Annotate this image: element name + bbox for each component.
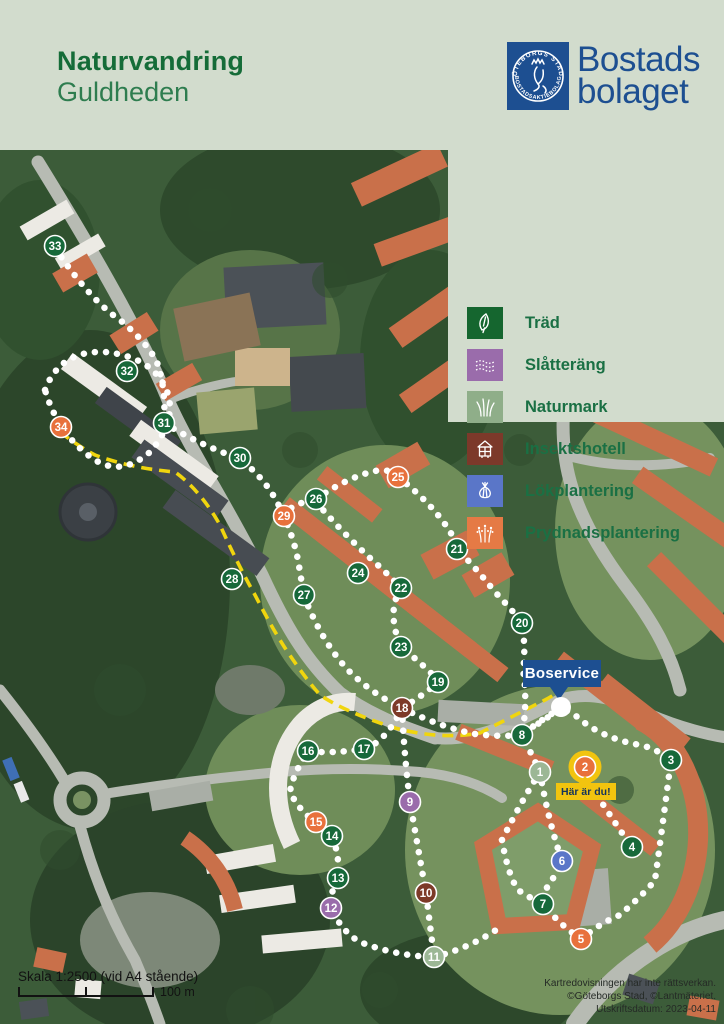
- svg-text:27: 27: [298, 590, 311, 602]
- poster-page: 1234567891011121314151617181920212223242…: [0, 0, 724, 1024]
- leaf-icon: [467, 307, 503, 339]
- svg-text:15: 15: [310, 817, 323, 829]
- legend-item-insektshotell: Insektshotell: [467, 433, 707, 465]
- map-marker-1: 1: [530, 762, 551, 783]
- svg-text:31: 31: [158, 418, 171, 430]
- svg-text:8: 8: [519, 730, 526, 742]
- svg-text:6: 6: [559, 856, 565, 868]
- svg-text:9: 9: [407, 797, 413, 809]
- legend-label: Naturmark: [525, 398, 608, 417]
- map-attribution: Kartredovisningen har inte rättsverkan. …: [544, 977, 716, 1016]
- map-marker-27: 27: [294, 585, 315, 606]
- legend-item-slatterang: Slåtteräng: [467, 349, 707, 381]
- city-seal-icon: GÖTEBORGS STADS BOSTADSAKTIEBOLAG: [507, 42, 569, 110]
- svg-text:25: 25: [392, 472, 405, 484]
- scale-box: Skala 1:2500 (vid A4 stående) 100 m: [18, 969, 198, 997]
- map-marker-22: 22: [391, 578, 412, 599]
- page-subtitle: Guldheden: [57, 77, 244, 108]
- attribution-line: Utskriftsdatum: 2023-04-11: [544, 1003, 716, 1016]
- map-marker-8: 8: [512, 725, 533, 746]
- map-marker-15: 15: [306, 812, 327, 833]
- bostadsbolaget-logo: GÖTEBORGS STADS BOSTADSAKTIEBOLAG Bosta: [507, 42, 700, 110]
- svg-text:29: 29: [278, 511, 291, 523]
- map-marker-23: 23: [391, 637, 412, 658]
- attribution-line: Kartredovisningen har inte rättsverkan.: [544, 977, 716, 990]
- onion-icon: [467, 475, 503, 507]
- boservice-label: Boservice: [523, 660, 601, 687]
- svg-text:24: 24: [352, 568, 365, 580]
- map-marker-26: 26: [306, 489, 327, 510]
- map-marker-3: 3: [661, 750, 682, 771]
- header-band: Naturvandring Guldheden GÖTEBORGS STADS …: [0, 0, 724, 150]
- legend-item-naturmark: Naturmark: [467, 391, 707, 423]
- map-marker-19: 19: [428, 672, 449, 693]
- map-marker-18: 18: [392, 698, 413, 719]
- svg-text:32: 32: [121, 366, 134, 378]
- attribution-line: ©Göteborgs Stad, ©Lantmäteriet.: [544, 990, 716, 1003]
- svg-text:34: 34: [55, 422, 68, 434]
- svg-text:4: 4: [629, 842, 636, 854]
- scale-bar: [18, 987, 154, 997]
- legend-label: Träd: [525, 314, 560, 333]
- map-marker-24: 24: [348, 563, 369, 584]
- map-marker-31: 31: [154, 413, 175, 434]
- svg-text:33: 33: [49, 241, 62, 253]
- svg-text:19: 19: [432, 677, 445, 689]
- svg-text:7: 7: [540, 899, 546, 911]
- seal-text-top: GÖTEBORGS STADS: [507, 42, 564, 77]
- wordmark-line2: bolaget: [577, 76, 700, 108]
- map-marker-5: 5: [571, 929, 592, 950]
- map-marker-10: 10: [416, 883, 437, 904]
- map-marker-34: 34: [51, 417, 72, 438]
- map-marker-12: 12: [321, 898, 342, 919]
- map-marker-13: 13: [328, 868, 349, 889]
- svg-text:1: 1: [537, 767, 544, 779]
- map-marker-7: 7: [533, 894, 554, 915]
- map-marker-16: 16: [298, 741, 319, 762]
- svg-text:3: 3: [668, 755, 674, 767]
- scale-text: Skala 1:2500 (vid A4 stående): [18, 969, 198, 984]
- legend-label: Insektshotell: [525, 440, 626, 459]
- svg-text:GÖTEBORGS STADS: GÖTEBORGS STADS: [507, 42, 564, 77]
- legend-panel: Träd Slåtteräng Naturmark: [448, 150, 724, 422]
- svg-text:28: 28: [226, 574, 239, 586]
- lion-crest-icon: [532, 59, 546, 93]
- svg-text:17: 17: [358, 744, 371, 756]
- map-marker-32: 32: [117, 361, 138, 382]
- legend-item-trad: Träd: [467, 307, 707, 339]
- svg-text:22: 22: [395, 583, 408, 595]
- boservice-location-dot: [551, 697, 571, 717]
- map-marker-30: 30: [230, 448, 251, 469]
- svg-text:5: 5: [578, 934, 585, 946]
- svg-text:14: 14: [326, 831, 339, 843]
- title-block: Naturvandring Guldheden: [57, 46, 244, 108]
- you-are-here-label: Här är du!: [556, 783, 616, 800]
- svg-text:18: 18: [396, 703, 409, 715]
- grass-icon: [467, 391, 503, 423]
- map-marker-9: 9: [400, 792, 421, 813]
- legend-item-lokplantering: Lökplantering: [467, 475, 707, 507]
- map-marker-29: 29: [274, 506, 295, 527]
- legend-label: Lökplantering: [525, 482, 634, 501]
- map-marker-21: 21: [447, 539, 468, 560]
- svg-text:26: 26: [310, 494, 323, 506]
- legend-item-prydnadsplantering: Prydnadsplantering: [467, 517, 707, 549]
- insect-hotel-icon: [467, 433, 503, 465]
- svg-text:30: 30: [234, 453, 247, 465]
- svg-text:21: 21: [451, 544, 464, 556]
- svg-text:2: 2: [582, 762, 588, 774]
- svg-text:11: 11: [428, 952, 441, 964]
- svg-text:12: 12: [325, 903, 338, 915]
- map-marker-20: 20: [512, 613, 533, 634]
- wordmark: Bostads bolaget: [577, 44, 700, 108]
- map-marker-17: 17: [354, 739, 375, 760]
- svg-text:23: 23: [395, 642, 408, 654]
- ornamental-icon: [467, 517, 503, 549]
- map-marker-4: 4: [622, 837, 643, 858]
- page-title: Naturvandring: [57, 46, 244, 77]
- map-marker-33: 33: [45, 236, 66, 257]
- scale-distance: 100 m: [160, 987, 195, 997]
- svg-text:20: 20: [516, 618, 529, 630]
- meadow-icon: [467, 349, 503, 381]
- legend-label: Slåtteräng: [525, 356, 606, 375]
- map-marker-25: 25: [388, 467, 409, 488]
- svg-text:13: 13: [332, 873, 345, 885]
- map-marker-6: 6: [552, 851, 573, 872]
- map-marker-11: 11: [424, 947, 445, 968]
- svg-text:16: 16: [302, 746, 315, 758]
- legend-label: Prydnadsplantering: [525, 524, 680, 543]
- svg-text:10: 10: [420, 888, 433, 900]
- map-marker-28: 28: [222, 569, 243, 590]
